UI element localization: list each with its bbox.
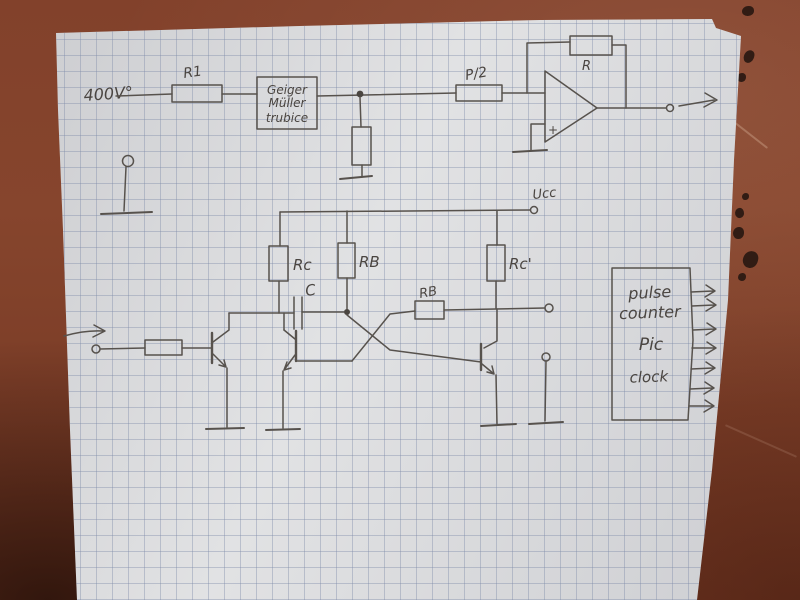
resistor-p2-label: P/2 xyxy=(464,64,489,84)
capacitor-c-label: C xyxy=(304,281,317,300)
transistor-q2-collector xyxy=(284,330,295,339)
wire-noninverting-input xyxy=(531,124,545,150)
terminal-post-lead xyxy=(545,361,546,421)
hv-voltage-label: 400V° xyxy=(83,83,134,105)
opamp-noninverting-label: + xyxy=(548,123,558,137)
resistor-rc-right-label: Rc' xyxy=(509,255,532,273)
resistor-rc-right xyxy=(487,245,505,281)
terminal-post-circle xyxy=(123,156,134,167)
ground-symbol xyxy=(481,424,516,426)
counter-output-lines xyxy=(689,285,716,412)
terminal-post-lead xyxy=(124,167,126,211)
ground-symbol xyxy=(513,150,547,152)
resistor-p2 xyxy=(456,85,502,101)
wire-to-output-node xyxy=(444,308,545,310)
pulldown-resistor xyxy=(352,127,371,165)
resistor-rb-upper-label: RB xyxy=(359,253,380,271)
geiger-tube-label-1: Geiger xyxy=(267,83,308,97)
input-terminal-circle xyxy=(92,345,100,353)
junction-dot xyxy=(344,309,350,315)
resistor-r1 xyxy=(172,85,222,102)
output-terminal-circle xyxy=(667,105,674,112)
wire-tube-to-p2 xyxy=(317,93,456,96)
ground-symbol xyxy=(206,428,244,429)
counter-box-label-3: Pic xyxy=(639,335,664,355)
output-arrow xyxy=(679,93,717,107)
geiger-tube-label-3: trubice xyxy=(266,111,308,125)
ucc-drops xyxy=(280,211,497,246)
wire-junction-down xyxy=(360,97,361,127)
resistor-rb-coupling xyxy=(415,301,444,319)
feedback-resistor-label: R xyxy=(582,59,591,74)
ground-symbol xyxy=(529,422,563,424)
wire-input xyxy=(100,348,145,349)
counter-box-label-1: pulse xyxy=(627,282,672,303)
geiger-tube-label-2: Müller xyxy=(269,96,307,110)
wire-feedback-left xyxy=(527,42,570,93)
wire-feedback-right xyxy=(612,45,626,108)
ucc-terminal-circle xyxy=(531,207,538,214)
input-series-resistor xyxy=(145,340,182,355)
resistor-rb-coupling-label: RB xyxy=(418,284,438,302)
flipflop-output-terminal xyxy=(545,304,553,312)
counter-box-label-2: counter xyxy=(619,302,683,323)
transistor-q3-collector xyxy=(484,309,497,348)
resistor-rc-left xyxy=(269,246,288,281)
feedback-resistor xyxy=(570,36,612,55)
resistor-r1-label: R1 xyxy=(182,64,203,82)
transistor-q1-collector xyxy=(213,313,229,342)
transistor-q1-emitter xyxy=(213,354,226,367)
q3-emitter-lead xyxy=(496,375,497,424)
transistor-q3-emitter xyxy=(482,364,494,374)
counter-box-label-4: clock xyxy=(629,367,669,386)
resistor-rb-upper xyxy=(338,243,355,278)
wire-cross-down xyxy=(347,315,481,362)
resistor-rc-left-label: Rc xyxy=(293,256,312,274)
ground-symbol xyxy=(266,429,300,430)
hand-drawn-circuit-schematic: 400V° R1 Geiger Müller trubice P/2 R + U… xyxy=(0,0,800,600)
ucc-rail xyxy=(280,210,530,212)
capacitor-c xyxy=(294,297,302,329)
transistor-q2-emitter xyxy=(284,355,295,370)
ground-symbol xyxy=(101,212,152,214)
wire-cross-up xyxy=(352,311,415,361)
ground-symbol xyxy=(340,176,372,179)
ucc-label: Ucc xyxy=(532,186,557,203)
input-arrow xyxy=(64,325,105,337)
terminal-post-circle xyxy=(542,353,550,361)
